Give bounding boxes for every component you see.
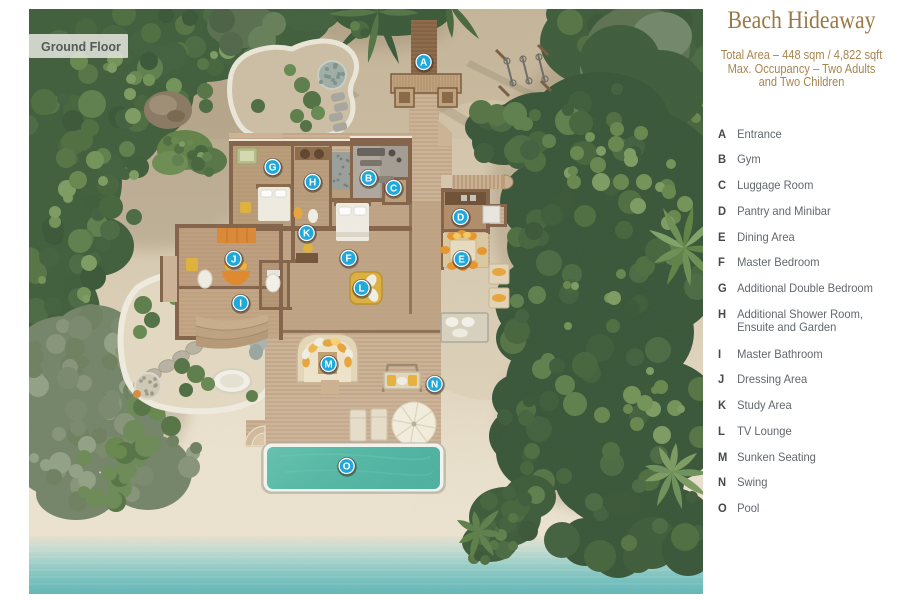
- svg-text:B: B: [365, 174, 372, 185]
- svg-text:A: A: [420, 58, 427, 69]
- svg-text:I: I: [239, 299, 242, 310]
- svg-text:D: D: [457, 213, 464, 224]
- svg-text:K: K: [303, 229, 311, 240]
- svg-text:E: E: [458, 255, 465, 266]
- svg-text:G: G: [269, 163, 277, 174]
- svg-text:C: C: [390, 184, 397, 195]
- svg-text:M: M: [324, 360, 332, 371]
- svg-text:L: L: [359, 284, 365, 295]
- svg-text:J: J: [231, 255, 237, 266]
- svg-text:F: F: [346, 254, 352, 265]
- svg-text:O: O: [343, 462, 351, 473]
- svg-text:H: H: [309, 178, 316, 189]
- svg-text:N: N: [431, 380, 438, 391]
- svg-text:Ground Floor: Ground Floor: [41, 40, 121, 54]
